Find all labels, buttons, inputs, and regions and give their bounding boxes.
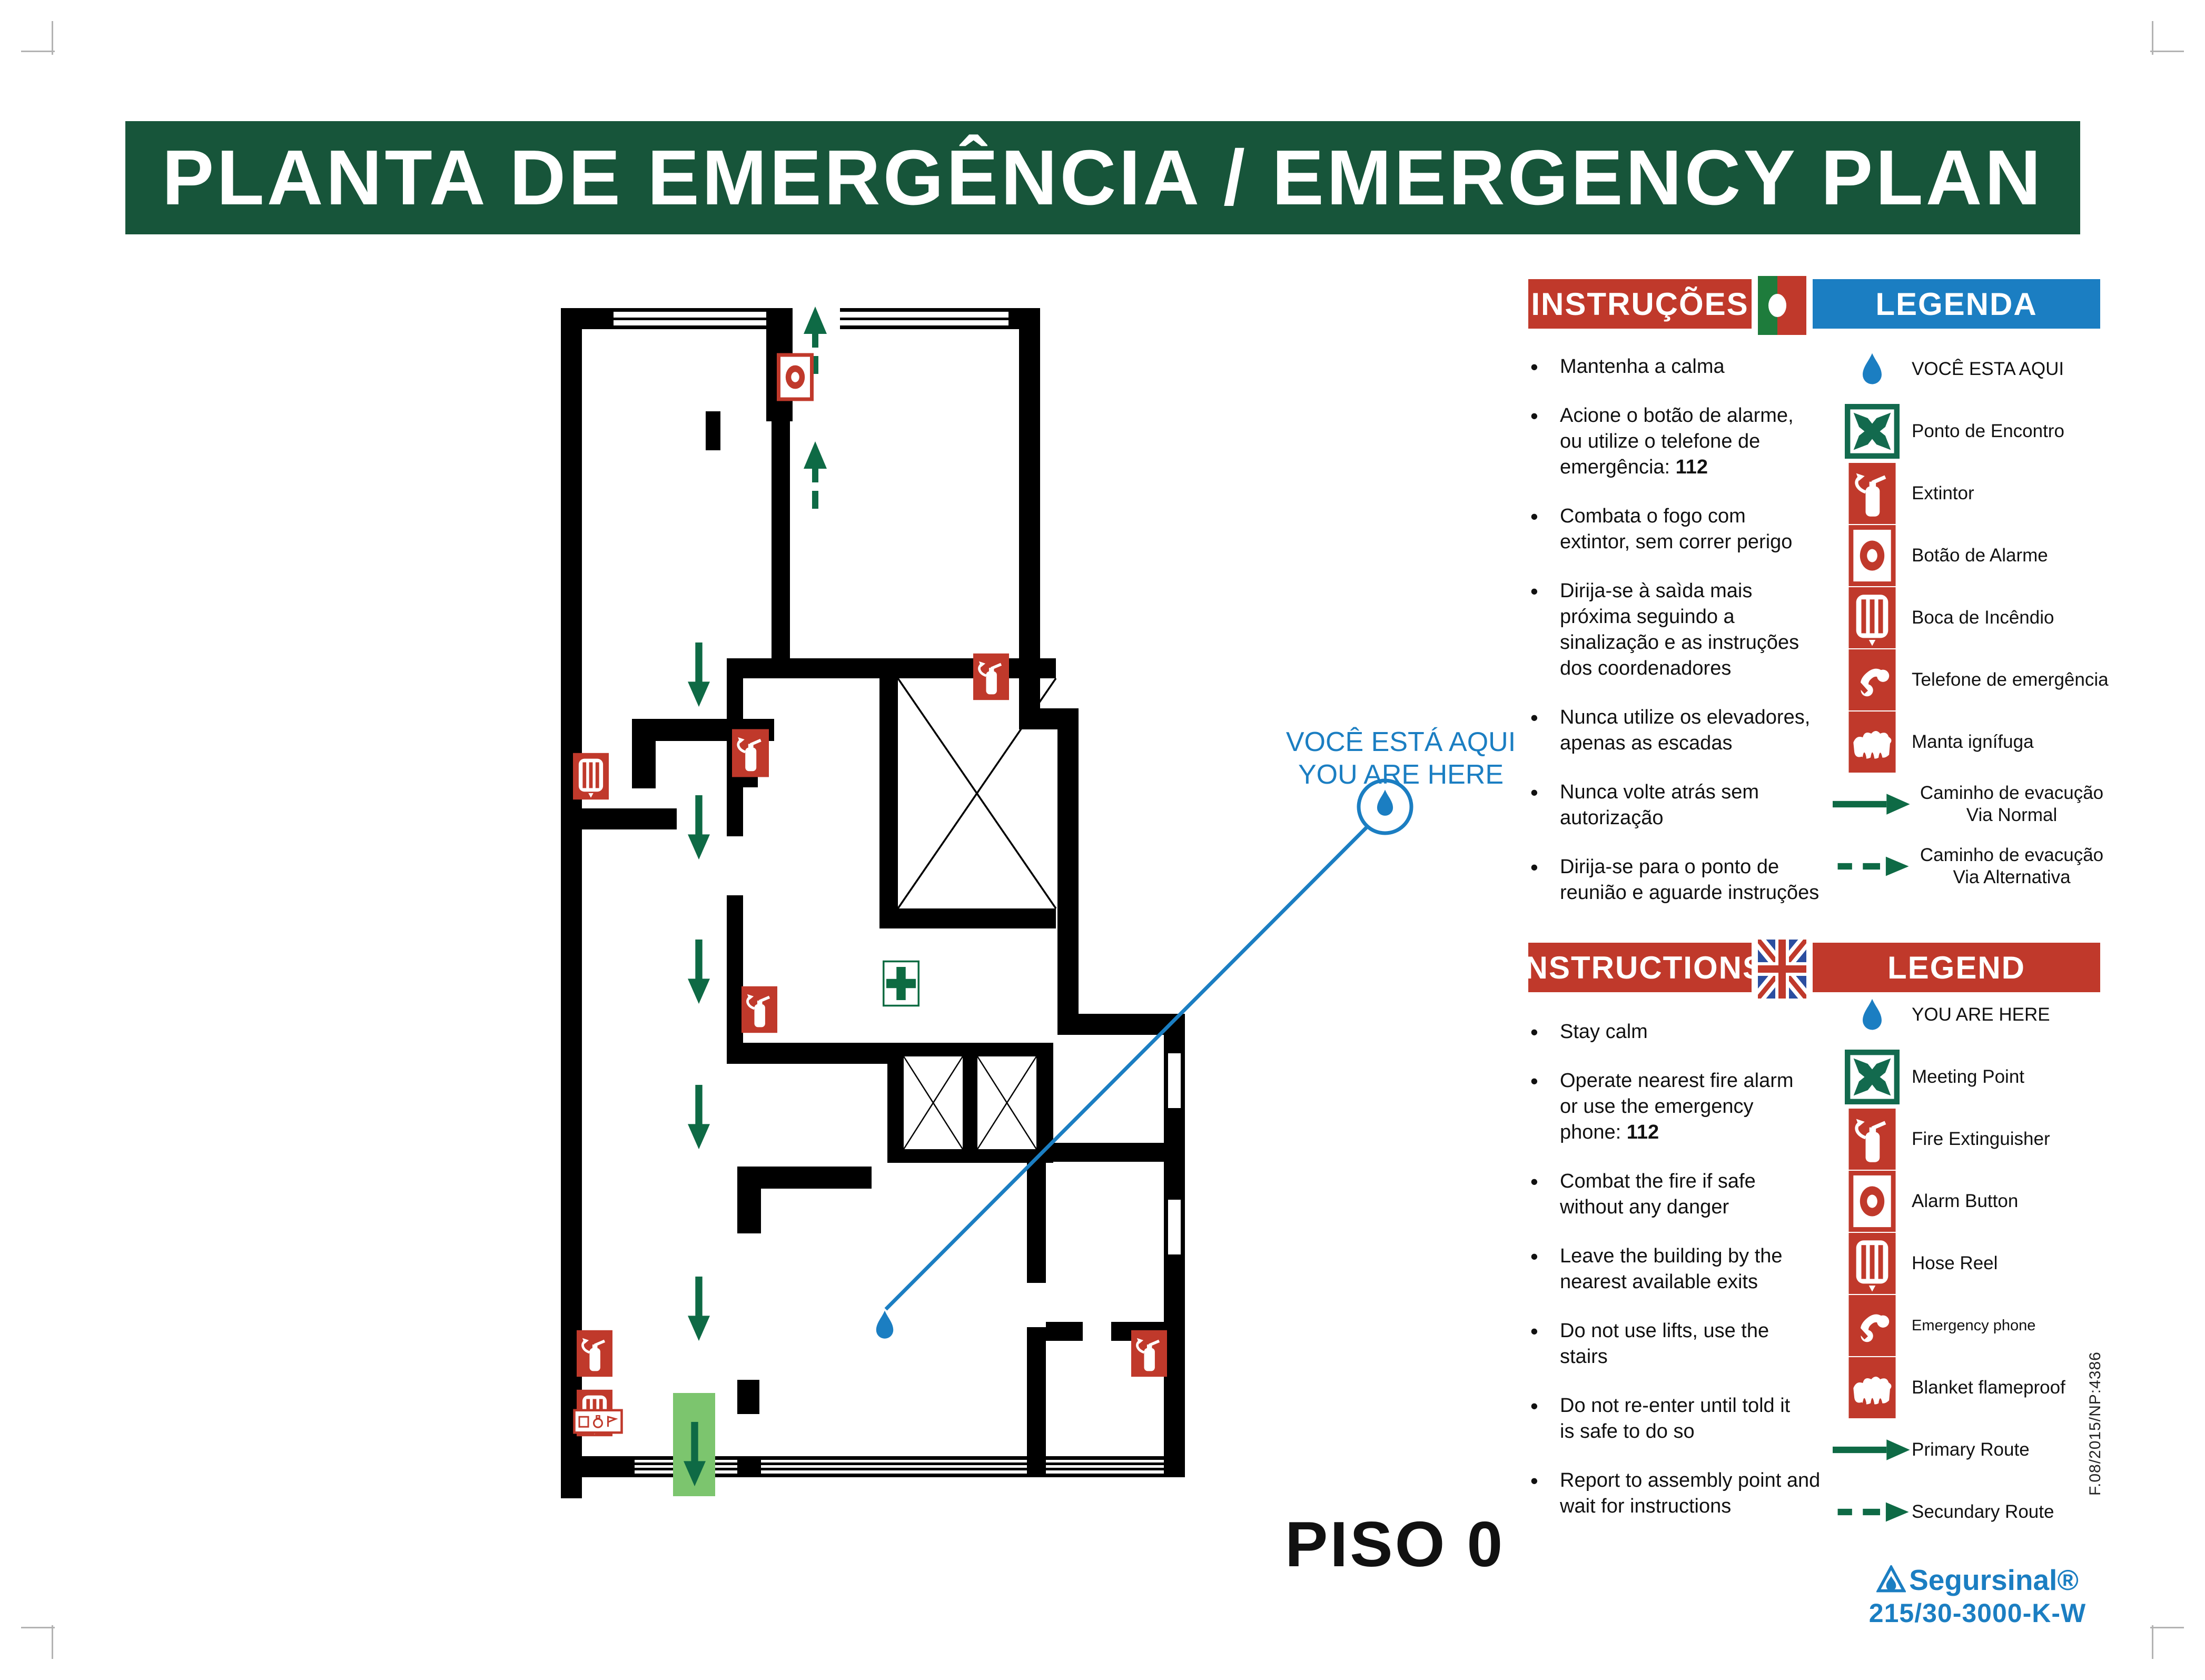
legend-label: Boca de Incêndio <box>1912 607 2054 629</box>
extinguisher-icon <box>973 654 1009 700</box>
legend-item: Caminho de evacução Via Normal <box>1833 773 2170 835</box>
you-are-here-label-en: YOU ARE HERE <box>1274 758 1527 791</box>
instruction-item: •Dirija-se para o ponto de reunião e agu… <box>1527 854 1843 906</box>
instruction-item: •Report to assembly point and wait for i… <box>1527 1468 1843 1519</box>
alarm-button-icon <box>1833 525 1912 586</box>
pt-instructions-header: INSTRUÇÕES <box>1528 279 1752 329</box>
elevator-shaft-cross <box>898 678 1056 908</box>
plan-walls <box>561 308 1185 1498</box>
fire-equipment-sign-icon <box>575 1410 622 1433</box>
bullet-dot: • <box>1527 403 1560 480</box>
extinguisher-icon <box>1833 1109 1912 1170</box>
pt-legend-header: LEGENDA <box>1813 279 2100 329</box>
you-are-here-icon <box>1377 790 1393 816</box>
brand-name: Segursinal® <box>1909 1563 2079 1597</box>
crop-mark <box>52 21 53 55</box>
route-arrow-down-icon <box>688 795 710 859</box>
instruction-text: Acione o botão de alarme, ou utilize o t… <box>1560 403 1843 480</box>
instruction-text: Do not re-enter until told it is safe to… <box>1560 1393 1843 1445</box>
instruction-text: Nunca volte atrás sem autorização <box>1560 779 1843 831</box>
legend-item: Extintor <box>1833 462 2170 525</box>
legend-item: Fire Extinguisher <box>1833 1108 2170 1170</box>
legend-label: Manta ignífuga <box>1912 731 2034 753</box>
bullet-dot: • <box>1527 1318 1560 1370</box>
instruction-text: Combat the fire if safe without any dang… <box>1560 1169 1843 1220</box>
legend-item: VOCÊ ESTA AQUI <box>1833 338 2170 400</box>
instruction-item: •Acione o botão de alarme, ou utilize o … <box>1527 403 1843 480</box>
legend-item: Telefone de emergência <box>1833 649 2170 711</box>
legend-label: Meeting Point <box>1912 1066 2024 1088</box>
legend-item: Manta ignífuga <box>1833 711 2170 773</box>
bullet-dot: • <box>1527 354 1560 380</box>
legend-label: Ponto de Encontro <box>1912 420 2064 442</box>
crop-mark <box>52 1625 53 1659</box>
hose-reel-icon <box>1833 587 1912 648</box>
bullet-dot: • <box>1527 779 1560 831</box>
instruction-text: Mantenha a calma <box>1560 354 1843 380</box>
extinguisher-icon <box>577 1330 612 1377</box>
crop-mark <box>2152 1625 2153 1659</box>
bullet-dot: • <box>1527 1243 1560 1295</box>
pt-header-row: INSTRUÇÕES LEGENDA <box>0 276 2205 335</box>
bullet-dot: • <box>1527 1068 1560 1145</box>
segursinal-logo-icon <box>1876 1565 1906 1595</box>
bullet-dot: • <box>1527 1169 1560 1220</box>
instruction-item: •Combata o fogo com extintor, sem correr… <box>1527 503 1843 555</box>
legend-label: Blanket flameproof <box>1912 1377 2065 1399</box>
instruction-item: •Mantenha a calma <box>1527 354 1843 380</box>
legend-item: Secundary Route <box>1833 1481 2170 1543</box>
legend-label: Secundary Route <box>1912 1501 2054 1523</box>
route-arrow-down-icon <box>688 643 710 707</box>
instruction-text: Nunca utilize os elevadores, apenas as e… <box>1560 705 1843 756</box>
instruction-item: •Do not re-enter until told it is safe t… <box>1527 1393 1843 1445</box>
portugal-flag-icon <box>1758 276 1806 335</box>
legend-label: Fire Extinguisher <box>1912 1128 2050 1150</box>
floor-label: PISO 0 <box>1285 1507 1505 1581</box>
hose-reel-icon <box>573 753 609 799</box>
bullet-dot: • <box>1527 854 1560 906</box>
fire-blanket-icon <box>1833 711 1912 773</box>
en-instructions-list: •Stay calm•Operate nearest fire alarm or… <box>1527 1019 1843 1543</box>
meeting-point-icon <box>1833 404 1912 459</box>
legend-item: Ponto de Encontro <box>1833 400 2170 462</box>
emergency-phone-icon <box>1833 649 1912 710</box>
legend-item: Boca de Incêndio <box>1833 587 2170 649</box>
arrow-solid-icon <box>1833 788 1912 821</box>
emergency-phone-icon <box>1833 1295 1912 1356</box>
instruction-text: Stay calm <box>1560 1019 1843 1045</box>
instruction-text: Dirija-se para o ponto de reunião e agua… <box>1560 854 1843 906</box>
arrow-solid-icon <box>1833 1434 1912 1466</box>
uk-flag-icon <box>1758 940 1806 999</box>
legend-item: Emergency phone <box>1833 1294 2170 1357</box>
legend-label: Alarm Button <box>1912 1190 2018 1212</box>
legend-item: Blanket flameproof <box>1833 1357 2170 1419</box>
title-banner: PLANTA DE EMERGÊNCIA / EMERGENCY PLAN <box>125 121 2080 234</box>
en-instructions-header: INSTRUCTIONS <box>1528 943 1752 992</box>
extinguisher-icon <box>1131 1330 1167 1377</box>
instruction-item: •Combat the fire if safe without any dan… <box>1527 1169 1843 1220</box>
bullet-dot: • <box>1527 1019 1560 1045</box>
instruction-text: Operate nearest fire alarm or use the em… <box>1560 1068 1843 1145</box>
instruction-item: •Leave the building by the nearest avail… <box>1527 1243 1843 1295</box>
bullet-dot: • <box>1527 705 1560 756</box>
route-arrow-down-icon <box>688 1085 710 1149</box>
instruction-item: •Dirija-se à saìda mais próxima seguindo… <box>1527 578 1843 681</box>
arrow-dashed-icon <box>1833 850 1912 883</box>
you-are-here-label-pt: VOCÊ ESTÁ AQUI <box>1274 726 1527 758</box>
legend-label: Botão de Alarme <box>1912 545 2048 567</box>
instruction-item: •Do not use lifts, use the stairs <box>1527 1318 1843 1370</box>
legend-item: Botão de Alarme <box>1833 525 2170 587</box>
emergency-plan-poster: PLANTA DE EMERGÊNCIA / EMERGENCY PLAN <box>0 0 2205 1680</box>
legend-item: YOU ARE HERE <box>1833 984 2170 1046</box>
legend-item: Caminho de evacução Via Alternativa <box>1833 835 2170 897</box>
legend-label: Extintor <box>1912 482 1974 505</box>
you-are-here-label: VOCÊ ESTÁ AQUI YOU ARE HERE <box>1274 726 1527 791</box>
alarm-button-icon <box>1833 1171 1912 1232</box>
floor-plan <box>553 300 1185 1511</box>
page-title: PLANTA DE EMERGÊNCIA / EMERGENCY PLAN <box>162 133 2044 223</box>
extinguisher-icon <box>732 729 769 777</box>
crop-mark <box>21 1627 55 1628</box>
droplet-icon <box>1833 989 1912 1041</box>
fire-blanket-icon <box>1833 1357 1912 1418</box>
droplet-icon <box>1833 343 1912 396</box>
instruction-item: •Nunca volte atrás sem autorização <box>1527 779 1843 831</box>
alarm-button-icon <box>779 355 812 399</box>
instruction-text: Report to assembly point and wait for in… <box>1560 1468 1843 1519</box>
legend-label: VOCÊ ESTA AQUI <box>1912 358 2064 380</box>
instruction-item: •Stay calm <box>1527 1019 1843 1045</box>
arrow-dashed-icon <box>1833 1496 1912 1528</box>
legend-label: Telefone de emergência <box>1912 669 2109 691</box>
pt-instructions-list: •Mantenha a calma•Acione o botão de alar… <box>1527 354 1843 929</box>
crop-mark <box>2150 1627 2184 1628</box>
extinguisher-icon <box>1833 463 1912 524</box>
instruction-text: Do not use lifts, use the stairs <box>1560 1318 1843 1370</box>
branding-block: Segursinal® 215/30-3000-K-W <box>1859 1563 2096 1628</box>
document-reference: F.08/2015/NP:4386 <box>2087 1311 2104 1496</box>
crop-mark <box>21 51 55 52</box>
legend-label: Primary Route <box>1912 1439 2030 1461</box>
route-arrow-down-icon <box>688 1277 710 1341</box>
product-code: 215/30-3000-K-W <box>1859 1598 2096 1628</box>
legend-label: Caminho de evacução Via Normal <box>1912 782 2112 826</box>
instruction-item: •Operate nearest fire alarm or use the e… <box>1527 1068 1843 1145</box>
legend-label: YOU ARE HERE <box>1912 1004 2050 1026</box>
bullet-dot: • <box>1527 503 1560 555</box>
instruction-text: Combata o fogo com extintor, sem correr … <box>1560 503 1843 555</box>
meeting-point-icon <box>1833 1050 1912 1104</box>
bullet-dot: • <box>1527 1393 1560 1445</box>
hose-reel-icon <box>1833 1233 1912 1294</box>
bullet-dot: • <box>1527 1468 1560 1519</box>
legend-item: Meeting Point <box>1833 1046 2170 1108</box>
legend-label: Hose Reel <box>1912 1252 1998 1274</box>
legend-item: Alarm Button <box>1833 1170 2170 1232</box>
en-legend-list: YOU ARE HEREMeeting PointFire Extinguish… <box>1833 984 2170 1543</box>
bullet-dot: • <box>1527 578 1560 681</box>
legend-label: Caminho de evacução Via Alternativa <box>1912 844 2112 888</box>
instruction-item: •Nunca utilize os elevadores, apenas as … <box>1527 705 1843 756</box>
legend-item: Hose Reel <box>1833 1232 2170 1294</box>
crop-mark <box>2150 51 2184 52</box>
legend-label: Emergency phone <box>1912 1315 2035 1337</box>
legend-item: Primary Route <box>1833 1419 2170 1481</box>
crop-mark <box>2152 21 2153 55</box>
instruction-text: Dirija-se à saìda mais próxima seguindo … <box>1560 578 1843 681</box>
pt-legend-list: VOCÊ ESTA AQUIPonto de EncontroExtintorB… <box>1833 338 2170 897</box>
instruction-text: Leave the building by the nearest availa… <box>1560 1243 1843 1295</box>
route-arrow-up-icon <box>804 441 827 509</box>
